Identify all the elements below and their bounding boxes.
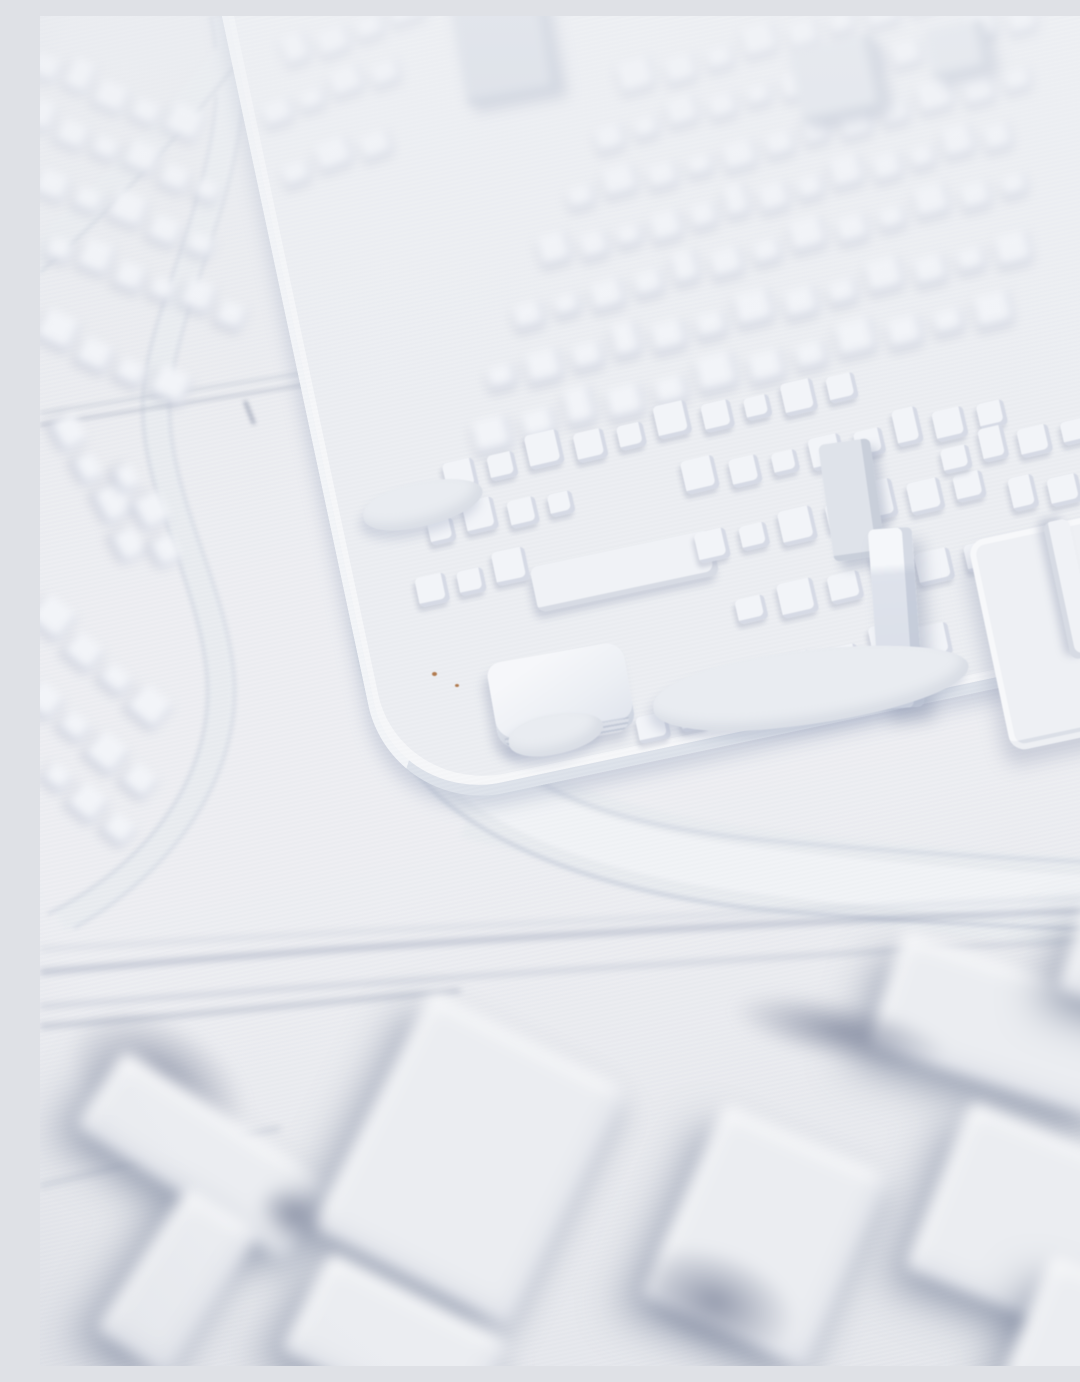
photo-3d-printed-city-model [40, 16, 1080, 1366]
lane-line [40, 896, 1080, 951]
lane-line [40, 909, 1080, 974]
foreground-lane-lines [40, 16, 1080, 1366]
lane-line [40, 991, 460, 1028]
curb-ridge [40, 1128, 280, 1191]
lane-line [40, 938, 1080, 1008]
